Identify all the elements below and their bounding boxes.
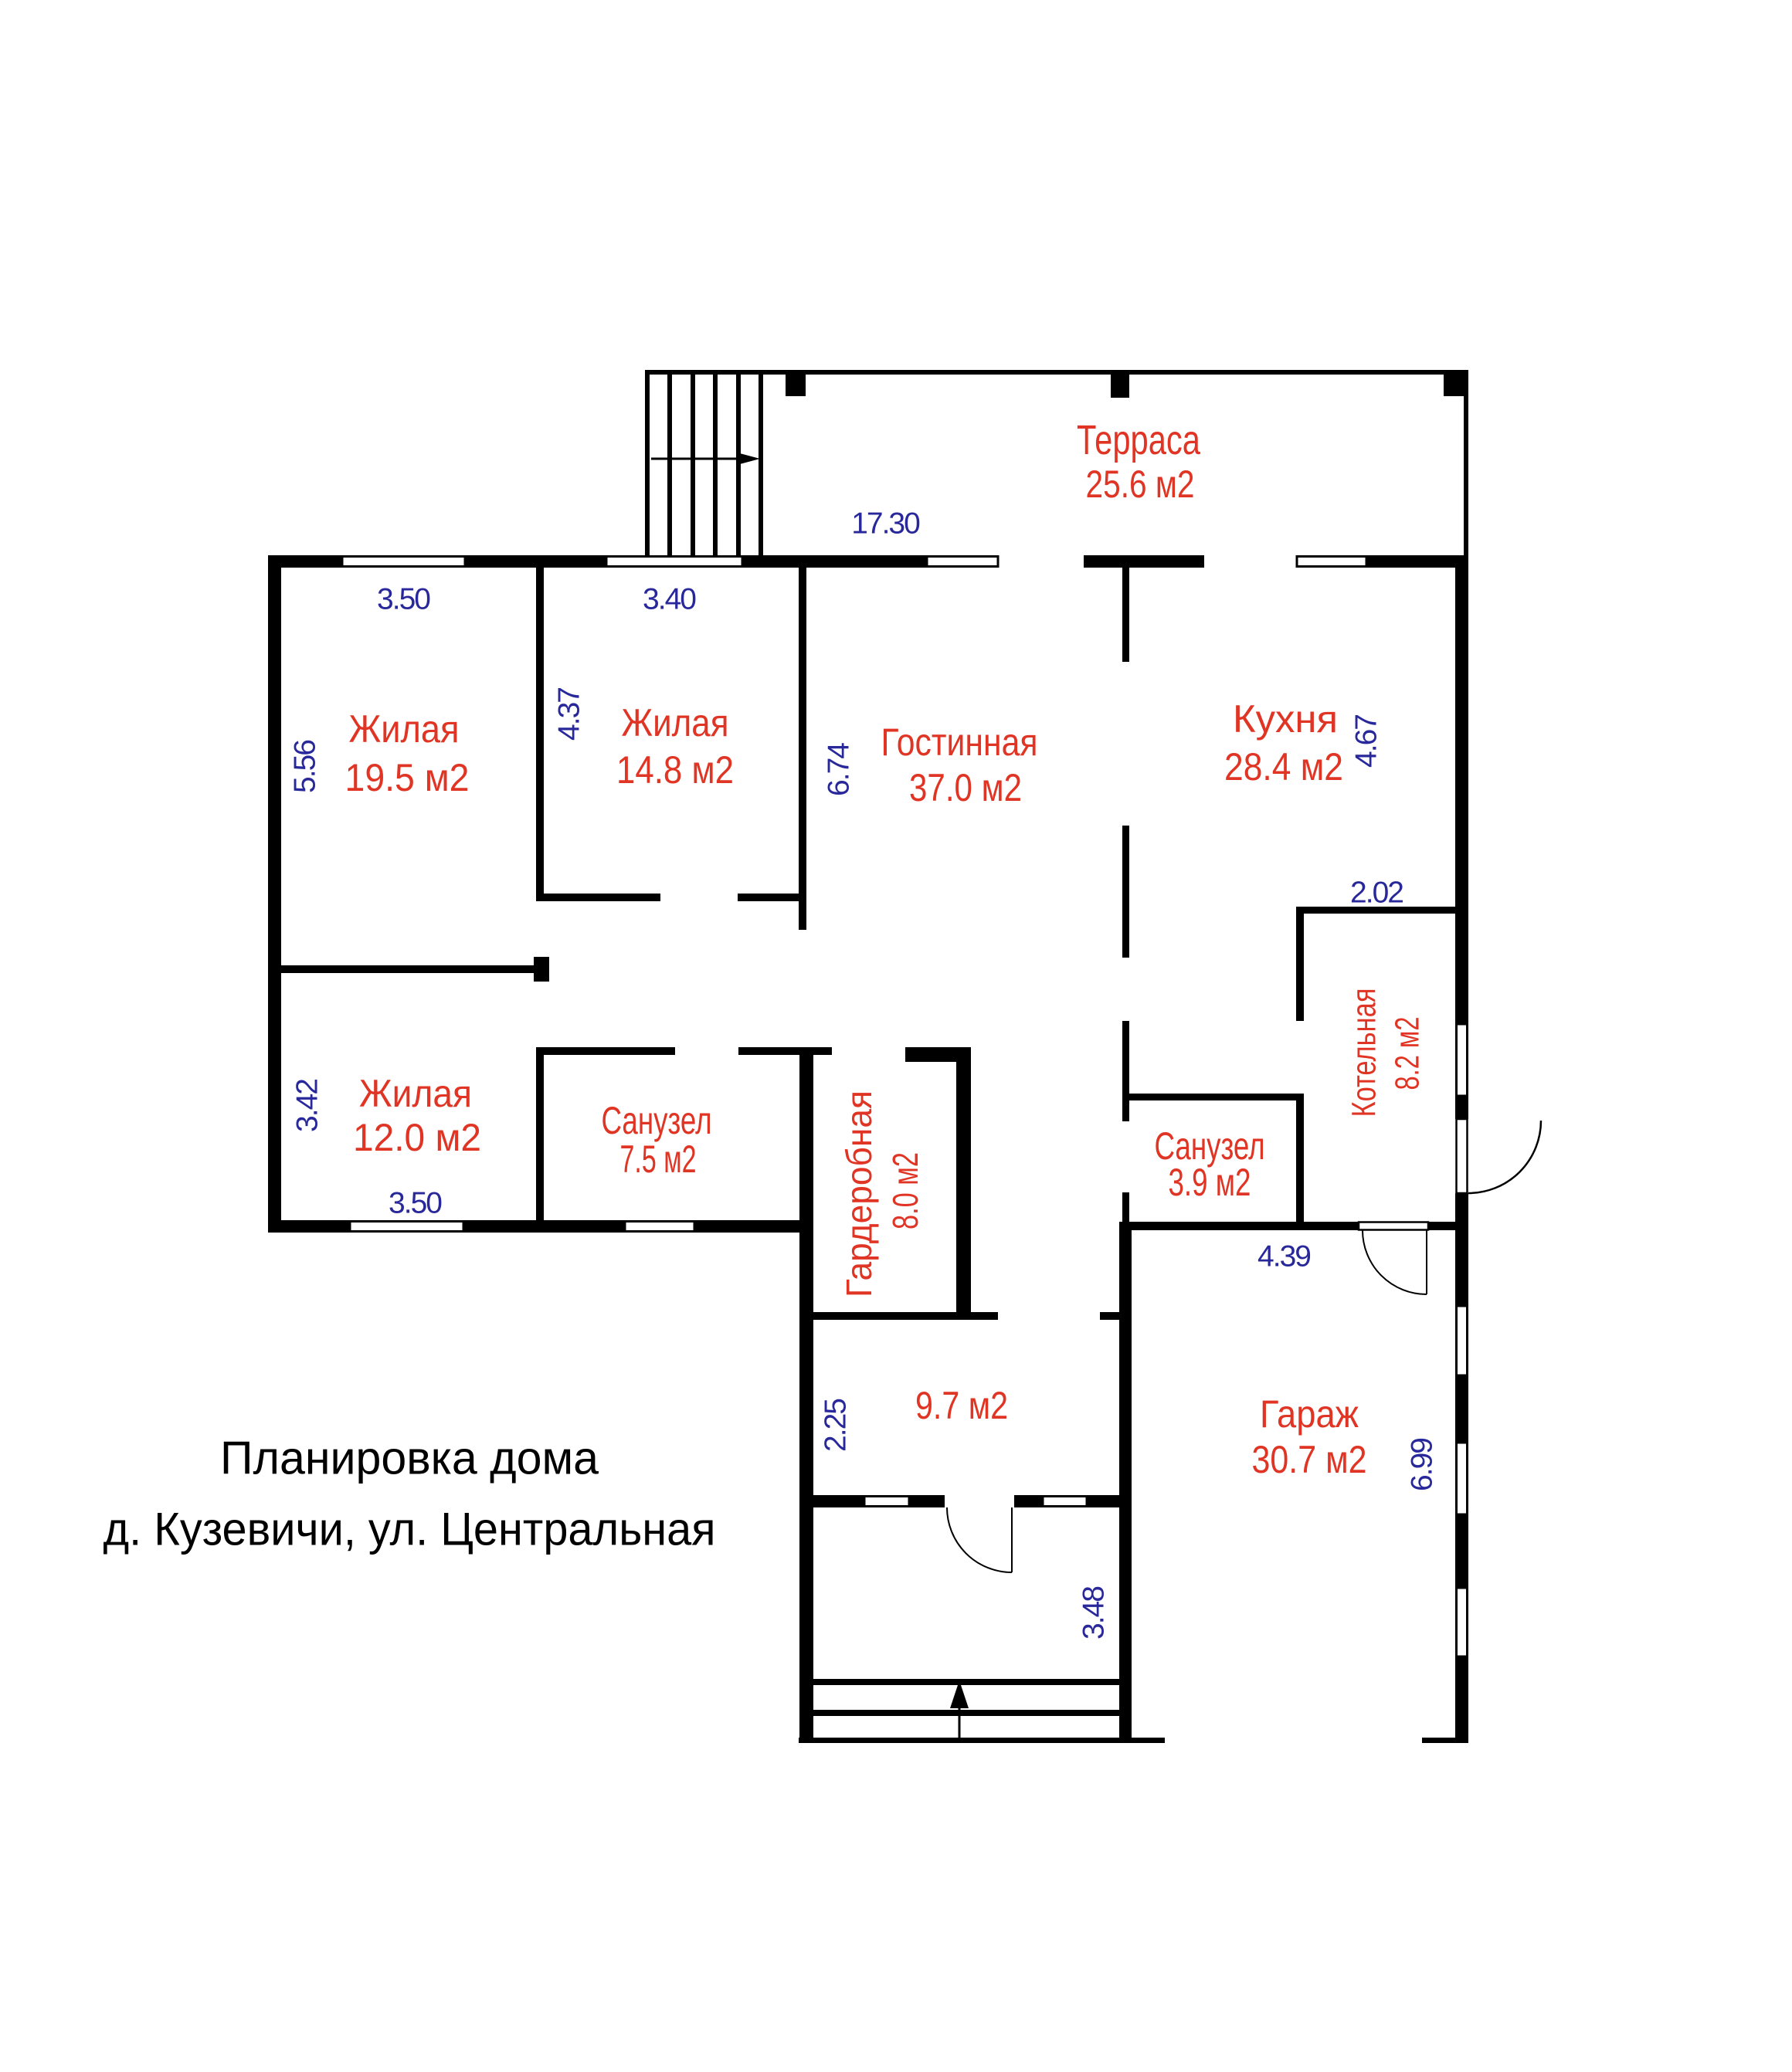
svg-text:7.5 м2: 7.5 м2 bbox=[620, 1138, 697, 1181]
svg-text:Гостинная: Гостинная bbox=[881, 721, 1038, 764]
svg-text:3.9 м2: 3.9 м2 bbox=[1169, 1161, 1251, 1204]
svg-text:30.7 м2: 30.7 м2 bbox=[1252, 1438, 1367, 1481]
svg-text:6.74: 6.74 bbox=[823, 743, 856, 796]
svg-text:4.39: 4.39 bbox=[1257, 1240, 1310, 1273]
svg-text:д. Кузевичи, ул. Центральная: д. Кузевичи, ул. Центральная bbox=[104, 1504, 716, 1555]
svg-text:25.6 м2: 25.6 м2 bbox=[1086, 463, 1195, 506]
svg-text:Санузел: Санузел bbox=[602, 1099, 712, 1142]
svg-text:Гардеробная: Гардеробная bbox=[839, 1090, 879, 1297]
svg-text:4.67: 4.67 bbox=[1350, 715, 1383, 768]
svg-text:3.50: 3.50 bbox=[377, 583, 430, 616]
svg-text:3.40: 3.40 bbox=[643, 583, 696, 616]
svg-text:28.4 м2: 28.4 м2 bbox=[1224, 745, 1343, 788]
svg-text:3.48: 3.48 bbox=[1078, 1587, 1111, 1640]
svg-text:Терраса: Терраса bbox=[1077, 417, 1201, 463]
svg-text:8.0 м2: 8.0 м2 bbox=[885, 1152, 925, 1229]
svg-text:19.5 м2: 19.5 м2 bbox=[345, 756, 470, 799]
svg-text:Котельная: Котельная bbox=[1346, 989, 1383, 1117]
svg-text:2.02: 2.02 bbox=[1350, 877, 1403, 910]
svg-text:37.0 м2: 37.0 м2 bbox=[909, 766, 1022, 809]
svg-text:4.37: 4.37 bbox=[553, 688, 586, 741]
svg-text:2.25: 2.25 bbox=[820, 1399, 853, 1452]
svg-text:8.2 м2: 8.2 м2 bbox=[1389, 1017, 1427, 1090]
svg-text:9.7 м2: 9.7 м2 bbox=[915, 1384, 1008, 1427]
svg-text:Жилая: Жилая bbox=[622, 701, 729, 744]
svg-text:Гараж: Гараж bbox=[1260, 1392, 1359, 1436]
svg-text:6.99: 6.99 bbox=[1406, 1439, 1439, 1491]
svg-text:Жилая: Жилая bbox=[349, 707, 460, 751]
svg-text:Жилая: Жилая bbox=[359, 1072, 472, 1115]
svg-text:3.50: 3.50 bbox=[389, 1187, 442, 1220]
svg-text:3.42: 3.42 bbox=[291, 1080, 324, 1132]
svg-text:12.0 м2: 12.0 м2 bbox=[353, 1116, 481, 1159]
svg-text:5.56: 5.56 bbox=[289, 741, 322, 793]
svg-text:17.30: 17.30 bbox=[851, 507, 920, 541]
svg-text:14.8 м2: 14.8 м2 bbox=[616, 748, 734, 792]
svg-text:Кухня: Кухня bbox=[1233, 697, 1338, 741]
svg-text:Планировка дома: Планировка дома bbox=[220, 1433, 599, 1484]
